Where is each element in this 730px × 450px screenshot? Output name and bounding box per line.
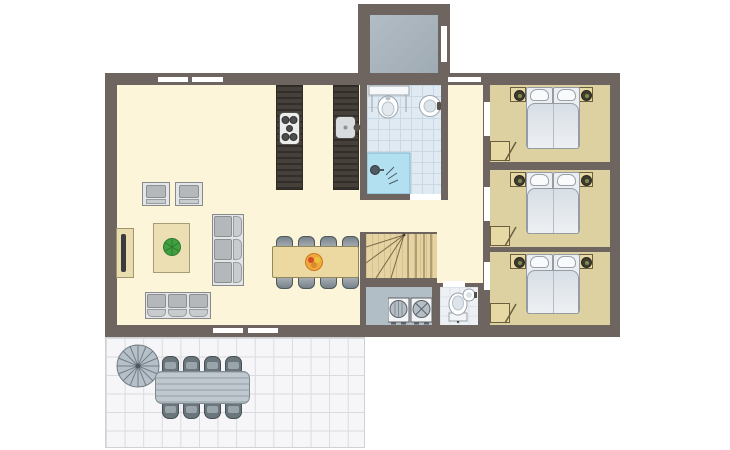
nightstand <box>510 254 526 269</box>
sofa-cushion <box>189 294 208 308</box>
outdoor-chair <box>204 356 221 372</box>
front-door-opening <box>441 26 447 62</box>
sofa-seat <box>189 309 208 317</box>
door-swing <box>502 301 518 325</box>
faucet-icon <box>354 124 361 131</box>
tv <box>121 234 126 272</box>
kitchen-sink <box>335 116 361 139</box>
entrance-porch <box>370 15 438 75</box>
stair-treads <box>366 232 437 278</box>
outdoor-chair <box>162 403 179 419</box>
lamp-icon <box>581 257 592 268</box>
lamp-icon <box>514 90 525 101</box>
sofa-seat <box>233 216 242 237</box>
shower-head-icon <box>371 166 380 175</box>
wc-fixtures <box>440 287 478 325</box>
bedroom-2-door-opening <box>484 187 490 221</box>
pillow <box>557 89 576 101</box>
vanity-counter <box>369 86 409 95</box>
pillow <box>557 174 576 186</box>
bedroom-3-door-opening <box>484 262 490 290</box>
bed-blanket <box>527 103 579 149</box>
sofa-cushion <box>214 239 232 260</box>
outdoor-chair <box>162 356 179 372</box>
door-swing <box>502 224 518 248</box>
outdoor-table <box>155 371 250 404</box>
fruit-bowl <box>304 252 324 272</box>
sofa-seat <box>233 239 242 260</box>
lamp-icon <box>514 175 525 186</box>
bed-blanket <box>527 270 579 314</box>
window <box>213 328 243 333</box>
sofa-seat <box>147 309 166 317</box>
sofa-cushion <box>214 216 232 237</box>
lamp-icon <box>581 90 592 101</box>
lamp-icon <box>514 257 525 268</box>
bathroom-fixtures <box>367 85 441 194</box>
laundry-appliances <box>388 296 434 325</box>
hallway-lower <box>437 232 448 283</box>
sofa-seat <box>168 309 187 317</box>
pillow <box>557 256 576 268</box>
stove <box>279 112 300 145</box>
outdoor-chair <box>225 403 242 419</box>
outdoor-chair <box>204 403 221 419</box>
lamp-icon <box>581 175 592 186</box>
bed-blanket <box>527 188 579 234</box>
hallway <box>448 85 483 283</box>
window <box>158 77 188 82</box>
faucet-icon <box>437 102 441 110</box>
outdoor-chair <box>183 403 200 419</box>
sofa-cushion <box>168 294 187 308</box>
window <box>448 77 481 82</box>
armchair-seat <box>146 199 166 204</box>
pillow <box>530 256 549 268</box>
window <box>248 328 278 333</box>
door-swing <box>502 139 518 163</box>
armchair-cushion <box>146 185 166 198</box>
outdoor-chair <box>225 356 242 372</box>
nightstand <box>510 172 526 187</box>
floor-plan <box>0 0 730 450</box>
sofa-cushion <box>214 262 232 283</box>
potted-plant <box>162 237 182 257</box>
outdoor-chair <box>183 356 200 372</box>
bathroom-door-opening <box>410 194 441 200</box>
passage <box>360 200 448 232</box>
nightstand <box>510 87 526 102</box>
sofa-seat <box>233 262 242 283</box>
sofa-cushion <box>147 294 166 308</box>
window <box>192 77 223 82</box>
faucet-icon <box>474 292 477 298</box>
armchair-cushion <box>179 185 199 198</box>
pillow <box>530 174 549 186</box>
bedroom-1-door-opening <box>484 102 490 136</box>
armchair-seat <box>179 199 199 204</box>
pillow <box>530 89 549 101</box>
